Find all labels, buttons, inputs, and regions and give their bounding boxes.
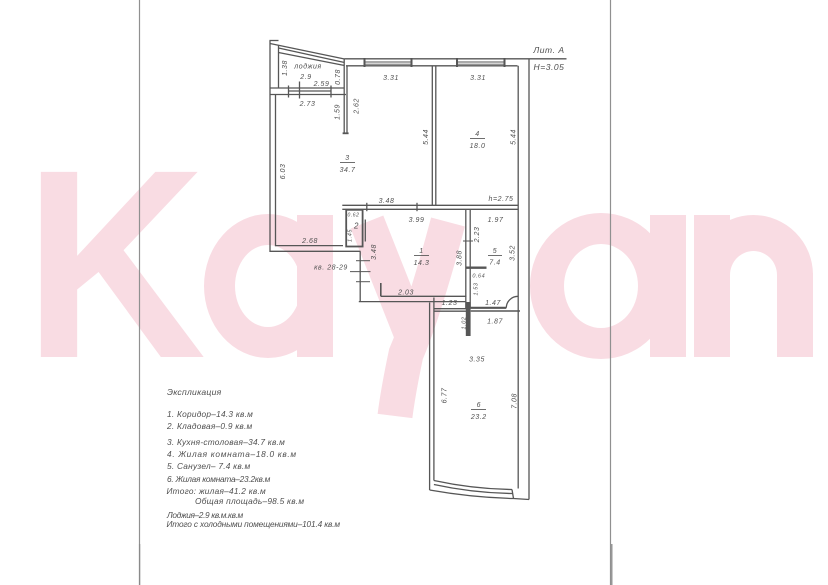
svg-text:2: 2 xyxy=(353,222,359,231)
svg-text:0.64: 0.64 xyxy=(472,274,485,280)
svg-text:3.88: 3.88 xyxy=(457,250,464,266)
svg-text:2.23: 2.23 xyxy=(474,227,481,244)
svg-text:2.03: 2.03 xyxy=(397,290,414,297)
svg-text:2.62: 2.62 xyxy=(354,98,361,115)
svg-text:1: 1 xyxy=(419,248,423,255)
svg-text:2.73: 2.73 xyxy=(299,101,316,108)
svg-text:K: K xyxy=(24,114,206,415)
svg-text:2.59: 2.59 xyxy=(313,81,330,88)
svg-text:Н=3.05: Н=3.05 xyxy=(534,62,565,72)
svg-text:3.31: 3.31 xyxy=(470,75,486,82)
svg-text:1.23: 1.23 xyxy=(442,300,458,307)
svg-text:3: 3 xyxy=(345,155,349,162)
svg-text:1.97: 1.97 xyxy=(488,217,504,224)
svg-text:0.62: 0.62 xyxy=(348,213,360,219)
svg-text:2.68: 2.68 xyxy=(301,238,318,245)
svg-text:2.9: 2.9 xyxy=(299,74,311,81)
svg-text:3.48: 3.48 xyxy=(371,244,378,260)
svg-text:5.44: 5.44 xyxy=(423,129,430,145)
svg-text:1.02: 1.02 xyxy=(462,317,468,330)
svg-text:3.31: 3.31 xyxy=(383,75,399,82)
svg-text:6: 6 xyxy=(477,402,481,409)
svg-text:1.59: 1.59 xyxy=(335,104,342,120)
svg-text:5.44: 5.44 xyxy=(511,129,518,145)
svg-text:6.77: 6.77 xyxy=(442,387,449,403)
svg-text:Лит. А: Лит. А xyxy=(532,45,564,55)
svg-text:14.3: 14.3 xyxy=(414,260,430,267)
svg-text:1.38: 1.38 xyxy=(282,60,289,76)
svg-text:0.78: 0.78 xyxy=(335,69,342,85)
svg-text:4: 4 xyxy=(475,131,479,138)
svg-text:6.03: 6.03 xyxy=(280,164,287,180)
svg-text:1.45: 1.45 xyxy=(348,229,354,242)
svg-text:1.53: 1.53 xyxy=(474,282,480,295)
svg-text:h=2.75: h=2.75 xyxy=(489,196,514,203)
svg-text:23.2: 23.2 xyxy=(470,414,487,421)
svg-text:7.08: 7.08 xyxy=(512,393,519,409)
svg-text:1.47: 1.47 xyxy=(485,300,501,307)
svg-text:3.52: 3.52 xyxy=(510,245,517,261)
svg-text:34.7: 34.7 xyxy=(340,167,356,174)
svg-text:7.4: 7.4 xyxy=(489,260,500,267)
svg-text:5: 5 xyxy=(493,248,497,255)
svg-text:лоджия: лоджия xyxy=(293,63,321,71)
svg-text:кв. 28-29: кв. 28-29 xyxy=(314,265,348,272)
svg-text:3.48: 3.48 xyxy=(379,198,395,205)
svg-text:1.87: 1.87 xyxy=(487,319,503,326)
svg-text:3.99: 3.99 xyxy=(409,217,425,224)
svg-text:3.35: 3.35 xyxy=(469,357,485,364)
svg-text:18.0: 18.0 xyxy=(470,143,486,150)
